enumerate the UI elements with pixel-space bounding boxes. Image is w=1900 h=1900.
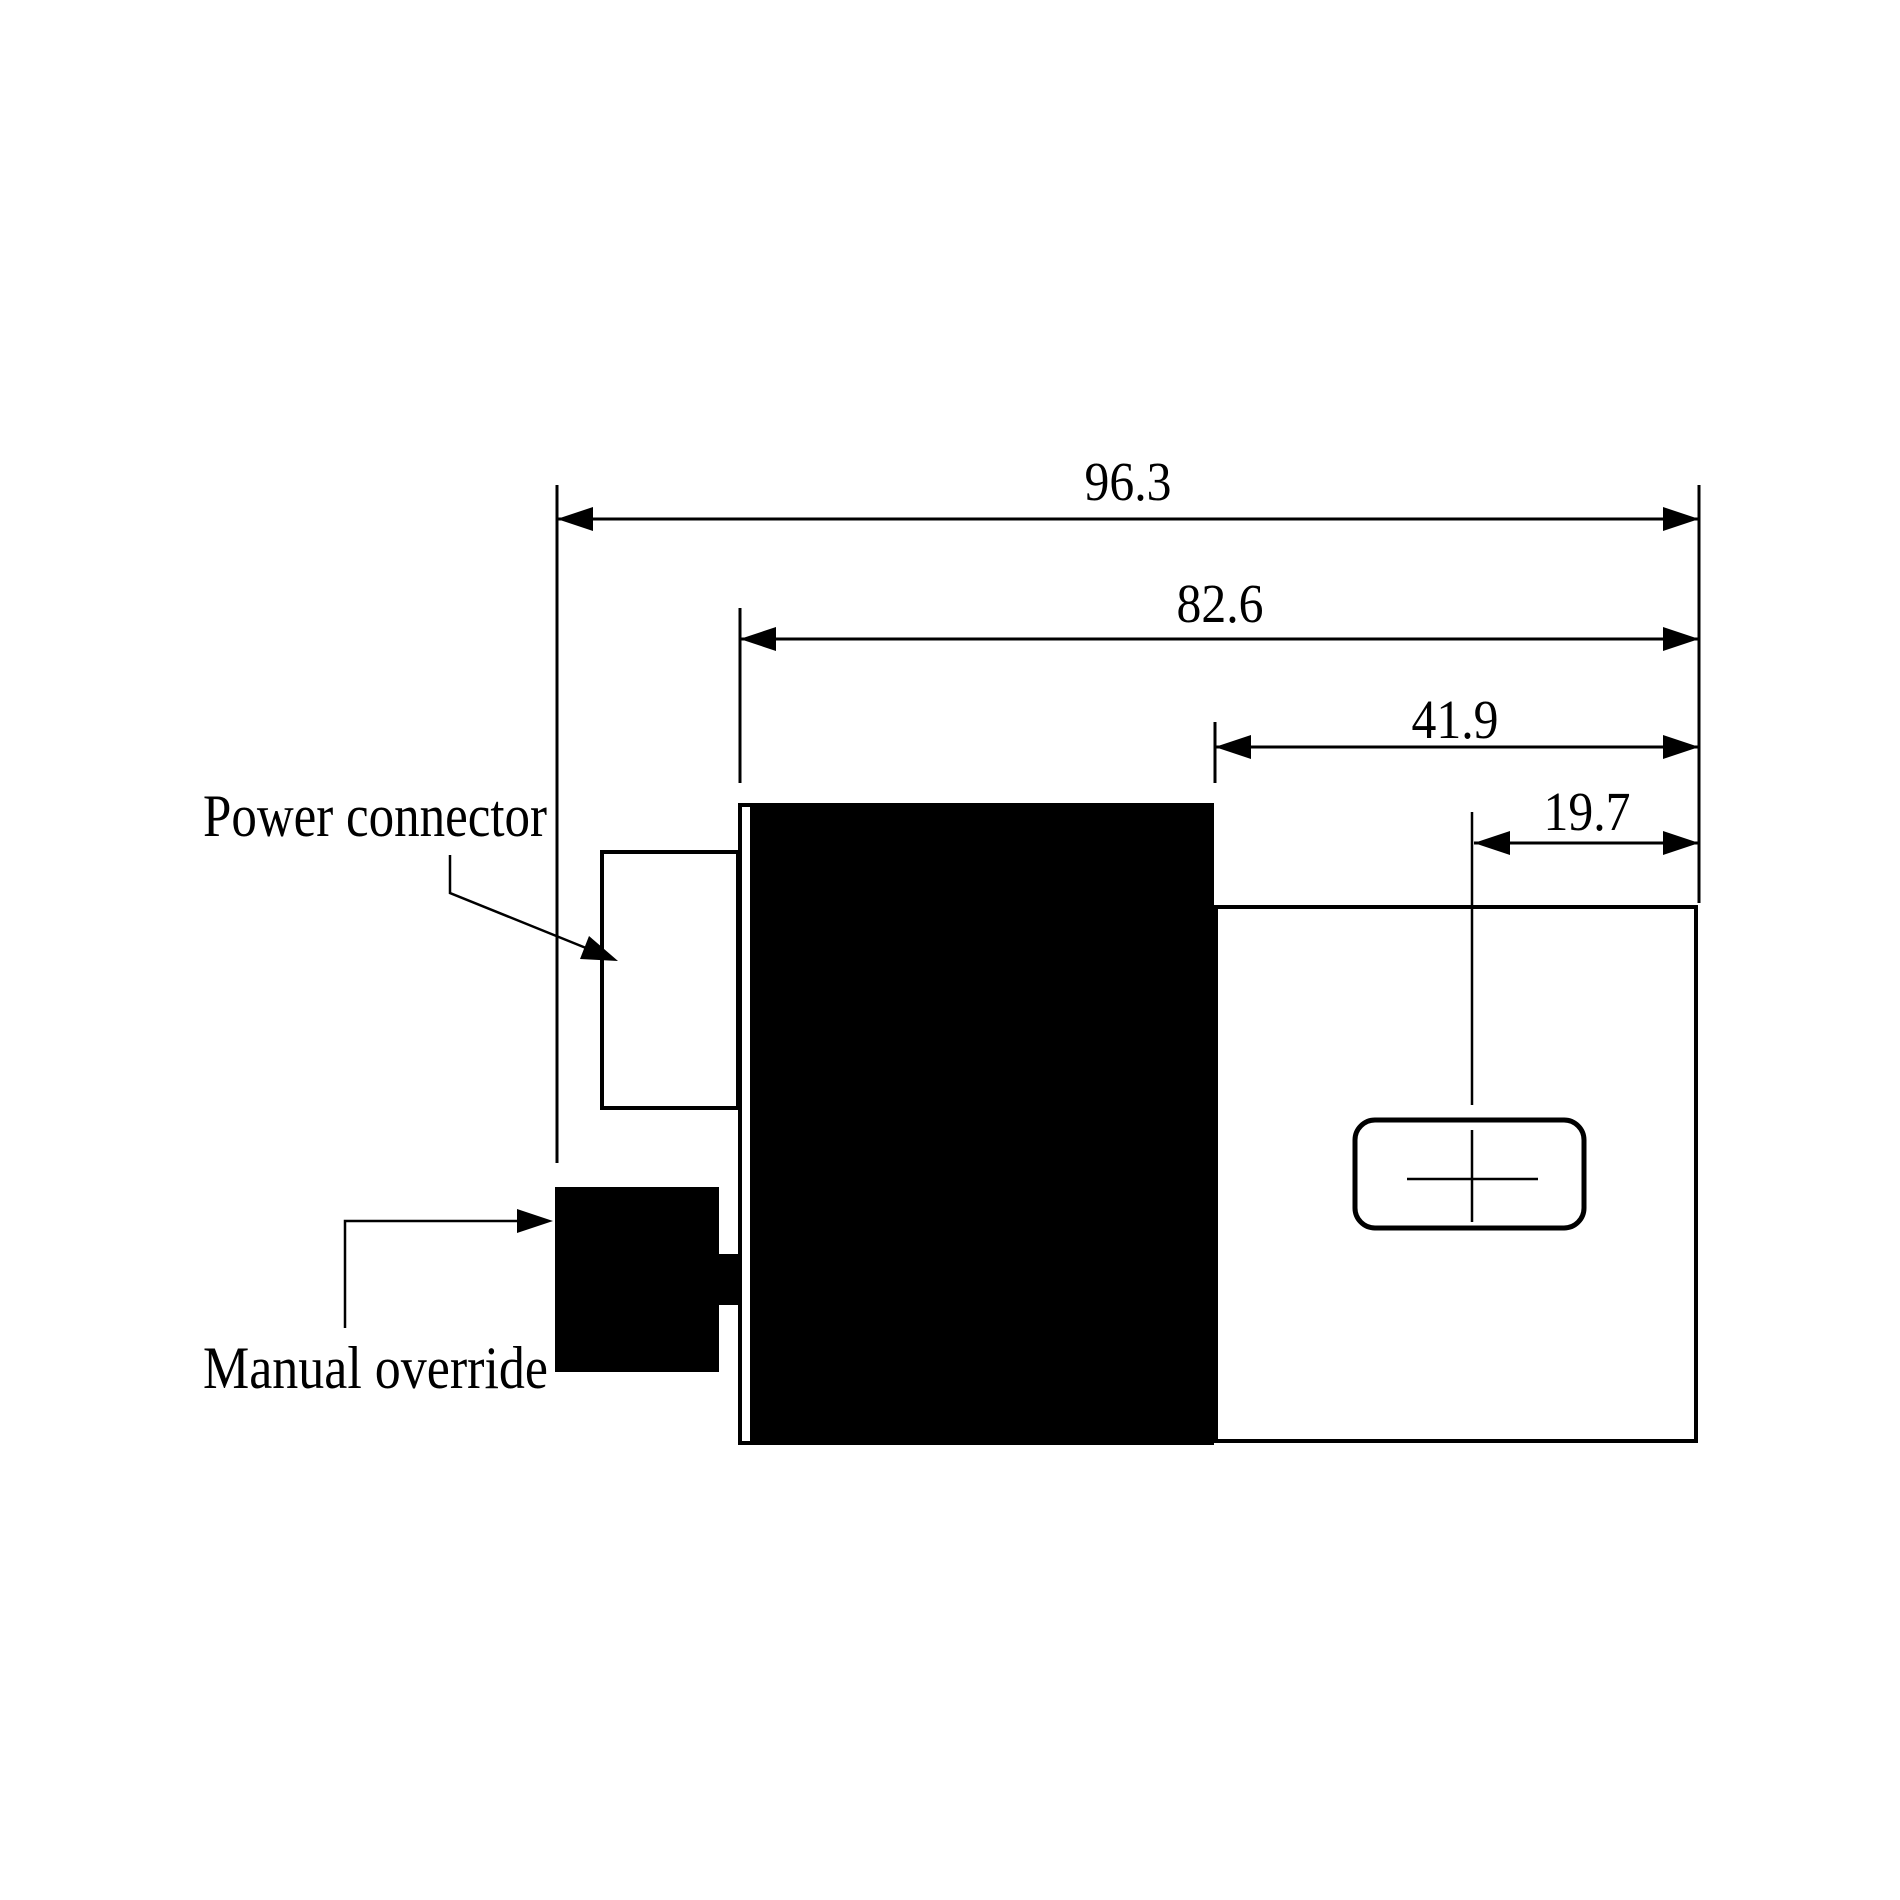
dimension-port-offset: 19.7 — [1474, 781, 1699, 855]
dimension-value: 19.7 — [1544, 781, 1631, 842]
dimension-overall: 96.3 — [557, 451, 1699, 531]
arrowhead-right-icon — [1663, 627, 1699, 651]
arrowhead-left-icon — [1215, 735, 1251, 759]
arrowhead-left-icon — [557, 507, 593, 531]
power-connector-leader — [450, 855, 586, 948]
manual-override-leader — [345, 1221, 520, 1328]
arrowhead-left-icon — [1474, 831, 1510, 855]
dimension-value: 96.3 — [1085, 451, 1172, 512]
arrowhead-right-icon — [1663, 831, 1699, 855]
coil-body-flange-highlight — [742, 807, 750, 1441]
arrowhead-right-icon — [1663, 735, 1699, 759]
power-connector-label: Power connector — [203, 783, 547, 849]
manual-override-annotation: Manual override — [203, 1209, 553, 1401]
solenoid-valve-dimension-drawing: 96.3 82.6 41.9 19.7 — [0, 0, 1900, 1900]
leader-arrowhead-icon — [517, 1209, 553, 1233]
manual-override-stem — [719, 1254, 740, 1305]
power-connector-box — [602, 852, 738, 1108]
port-outline — [1355, 1120, 1584, 1228]
arrowhead-right-icon — [1663, 507, 1699, 531]
arrowhead-left-icon — [740, 627, 776, 651]
dimension-coil-section: 82.6 — [740, 573, 1699, 651]
dimension-value: 82.6 — [1177, 573, 1264, 634]
solenoid-coil-body — [738, 803, 1214, 1445]
dimension-valve-body: 41.9 — [1215, 689, 1699, 759]
dimension-value: 41.9 — [1412, 689, 1499, 750]
manual-override-button — [555, 1187, 719, 1372]
drawing-canvas: 96.3 82.6 41.9 19.7 — [0, 0, 1900, 1900]
manual-override-label: Manual override — [203, 1335, 548, 1401]
